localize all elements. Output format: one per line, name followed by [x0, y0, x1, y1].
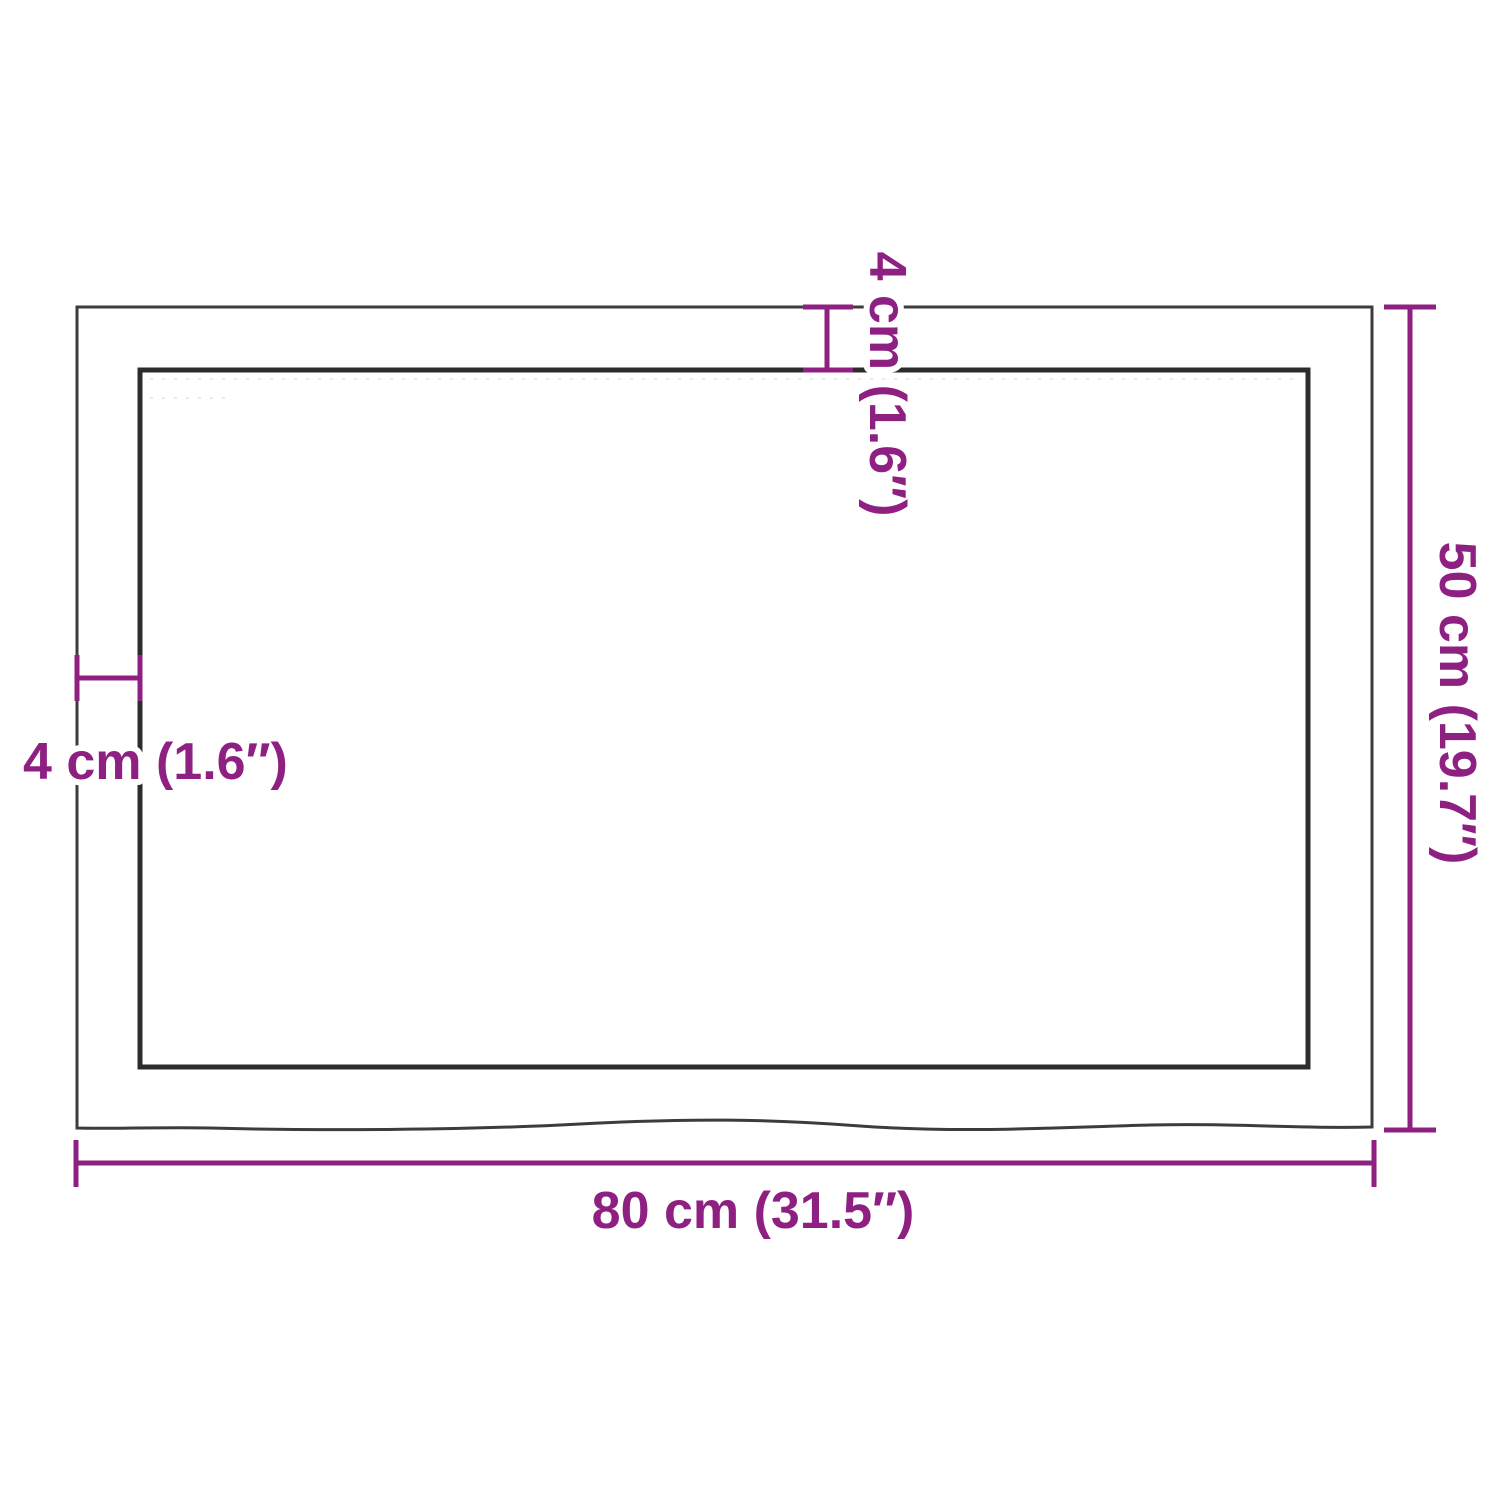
- dimension-thickness-left: 4 cm (1.6″): [23, 655, 288, 791]
- wood-grain-speckle: [150, 379, 1300, 398]
- dimension-height-label: 50 cm (19.7″): [1428, 542, 1486, 865]
- dimension-height: 50 cm (19.7″): [1384, 307, 1486, 1130]
- dimension-thickness-top-line: [803, 307, 853, 370]
- dimension-width-label: 80 cm (31.5″): [592, 1182, 915, 1240]
- dimension-thickness-left-line: [77, 655, 140, 701]
- dimension-thickness-left-label: 4 cm (1.6″): [23, 733, 288, 791]
- dimension-diagram: 80 cm (31.5″) 50 cm (19.7″) 4 cm (1.6″) …: [0, 0, 1500, 1500]
- dimension-thickness-top-label: 4 cm (1.6″): [858, 252, 916, 517]
- dimension-thickness-top: 4 cm (1.6″): [803, 252, 916, 517]
- slab-outer-edge: [77, 307, 1372, 1130]
- dimension-diagram-canvas: 80 cm (31.5″) 50 cm (19.7″) 4 cm (1.6″) …: [0, 0, 1500, 1500]
- dimension-width-line: [76, 1140, 1374, 1187]
- slab-inner-edge: [140, 370, 1308, 1067]
- dimension-width: 80 cm (31.5″): [76, 1140, 1374, 1240]
